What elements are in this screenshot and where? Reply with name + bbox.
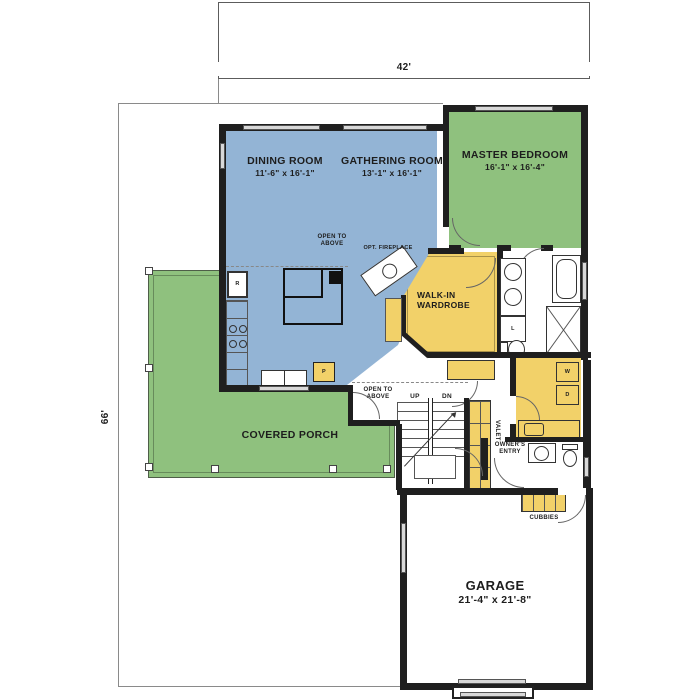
kitchen-island-counter-line (321, 270, 323, 298)
dining-room-label: DINING ROOM (229, 156, 341, 168)
bath-sink (504, 288, 522, 306)
washer: W (556, 362, 579, 382)
dimension-height-label: 66' (100, 402, 114, 432)
owners-entry-label: OWNER'S ENTRY (487, 442, 533, 458)
bathtub-basin (556, 259, 577, 299)
master-bedroom-size: 16'-1" x 16'-4" (453, 163, 577, 173)
garage-door-gap (558, 488, 586, 495)
wall (428, 352, 503, 358)
porch-post (145, 463, 153, 471)
kitchen-column (329, 271, 342, 284)
range-burner (229, 325, 237, 333)
garage-size: 21'-4" x 21'-8" (400, 595, 590, 607)
walk-in-wardrobe-label: WALK-IN WARDROBE (417, 291, 497, 315)
opt-fireplace-label: OPT. FIREPLACE (358, 245, 418, 253)
wall (396, 424, 402, 490)
dimension-extension-line (218, 79, 219, 103)
wall (348, 420, 400, 426)
covered-porch-label: COVERED PORCH (200, 430, 380, 444)
refrigerator-label: R (229, 281, 246, 287)
window (475, 106, 553, 111)
wardrobe-cabinet (385, 298, 402, 342)
wall (581, 105, 588, 360)
bathtub (552, 255, 581, 303)
wall (510, 358, 516, 396)
window (243, 125, 320, 130)
dimension-extension-line (118, 103, 443, 104)
powder-toilet-bowl (563, 450, 577, 467)
master-bedroom-label: MASTER BEDROOM (453, 150, 577, 162)
range-burner (239, 340, 247, 348)
porch-post (211, 465, 219, 473)
dryer: D (556, 385, 579, 405)
garage-label: GARAGE (400, 579, 590, 594)
dimension-height-line (118, 103, 119, 687)
shower-glass-lines (546, 306, 581, 354)
porch-post (329, 465, 337, 473)
wall (428, 248, 464, 254)
window (401, 523, 406, 573)
porch-post (145, 267, 153, 275)
refrigerator: R (227, 271, 248, 298)
gathering-room-size: 13'-1" x 16'-1" (337, 169, 447, 179)
dryer-label: D (557, 392, 578, 398)
kitchen-sink (261, 370, 307, 386)
porch-post (383, 465, 391, 473)
fireplace-circle (379, 261, 400, 282)
open-to-above-label: OPEN TO ABOVE (312, 234, 352, 250)
window (259, 386, 309, 391)
porch-post (145, 364, 153, 372)
window (220, 143, 225, 169)
up-label: UP (406, 393, 424, 401)
bath-sink (504, 263, 522, 281)
hall-closet (447, 360, 495, 380)
shower (546, 306, 581, 354)
kitchen-sink-divider (284, 371, 285, 385)
powder-sink (534, 446, 549, 461)
floor-plan: 42' 66' COVERED PORCH R P OPT. FIREPLACE… (0, 0, 700, 700)
window (582, 262, 587, 300)
open-to-above-boundary (226, 266, 348, 267)
dimension-extension-line (118, 686, 400, 687)
door-arc (494, 458, 524, 488)
window (458, 679, 526, 684)
window (343, 125, 427, 130)
garage-step-sill (460, 692, 526, 697)
dining-room-size: 11'-6" x 16'-1" (229, 169, 341, 179)
open-to-above-boundary (352, 382, 468, 383)
range-burner (239, 325, 247, 333)
linen-closet: L (500, 316, 526, 342)
wall (443, 105, 449, 227)
window (584, 457, 589, 477)
pantry: P (313, 362, 335, 382)
range-burner (229, 340, 237, 348)
foyer-closet (414, 455, 456, 479)
door-arc (558, 495, 586, 523)
laundry-sink (524, 423, 544, 436)
dimension-width-label: 42' (218, 62, 590, 76)
gathering-room-label: GATHERING ROOM (337, 156, 447, 168)
dn-label: DN (438, 393, 456, 401)
kitchen-island-counter-line (285, 296, 323, 298)
linen-label: L (501, 326, 525, 332)
washer-label: W (557, 369, 578, 375)
pantry-label: P (314, 369, 334, 375)
